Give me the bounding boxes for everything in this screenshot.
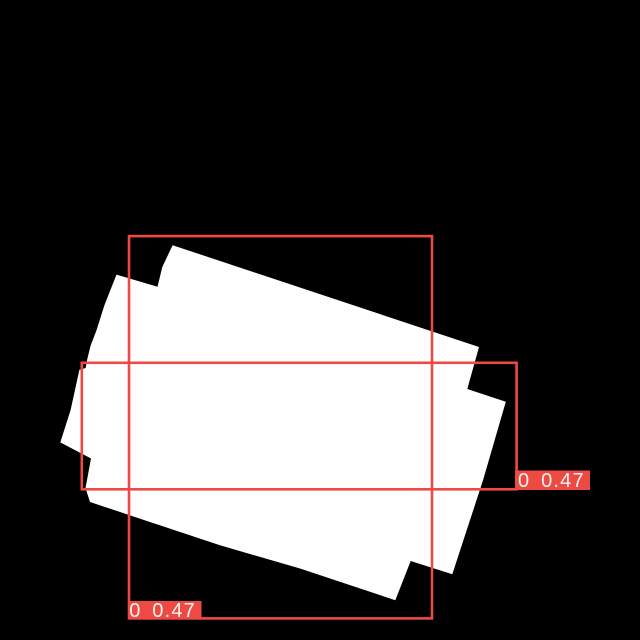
svg-text:0 0.47: 0 0.47	[518, 470, 585, 492]
svg-text:0 0.47: 0 0.47	[129, 600, 196, 622]
